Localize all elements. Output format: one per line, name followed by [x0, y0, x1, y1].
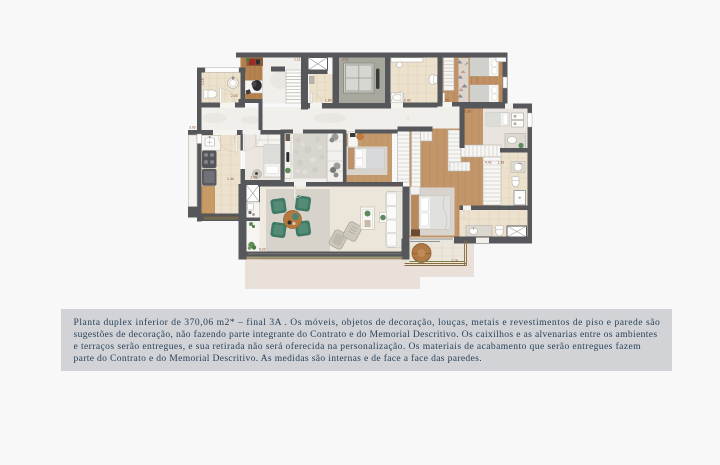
svg-text:7.62: 7.62	[393, 183, 400, 187]
svg-text:4.42: 4.42	[485, 161, 492, 165]
svg-text:9.22: 9.22	[259, 248, 266, 252]
svg-text:2.40: 2.40	[404, 99, 411, 103]
svg-text:1.80: 1.80	[325, 99, 332, 103]
svg-text:1.11: 1.11	[294, 58, 300, 62]
svg-text:1.44: 1.44	[227, 177, 234, 181]
svg-text:3.03: 3.03	[189, 126, 196, 130]
svg-text:3.35: 3.35	[464, 110, 471, 114]
svg-text:2.08: 2.08	[251, 176, 258, 180]
svg-text:1.36: 1.36	[498, 161, 505, 165]
svg-text:2.78: 2.78	[451, 259, 458, 263]
svg-text:1.11: 1.11	[342, 58, 348, 62]
svg-text:2.89: 2.89	[517, 207, 524, 211]
svg-text:1.15: 1.15	[201, 78, 205, 85]
